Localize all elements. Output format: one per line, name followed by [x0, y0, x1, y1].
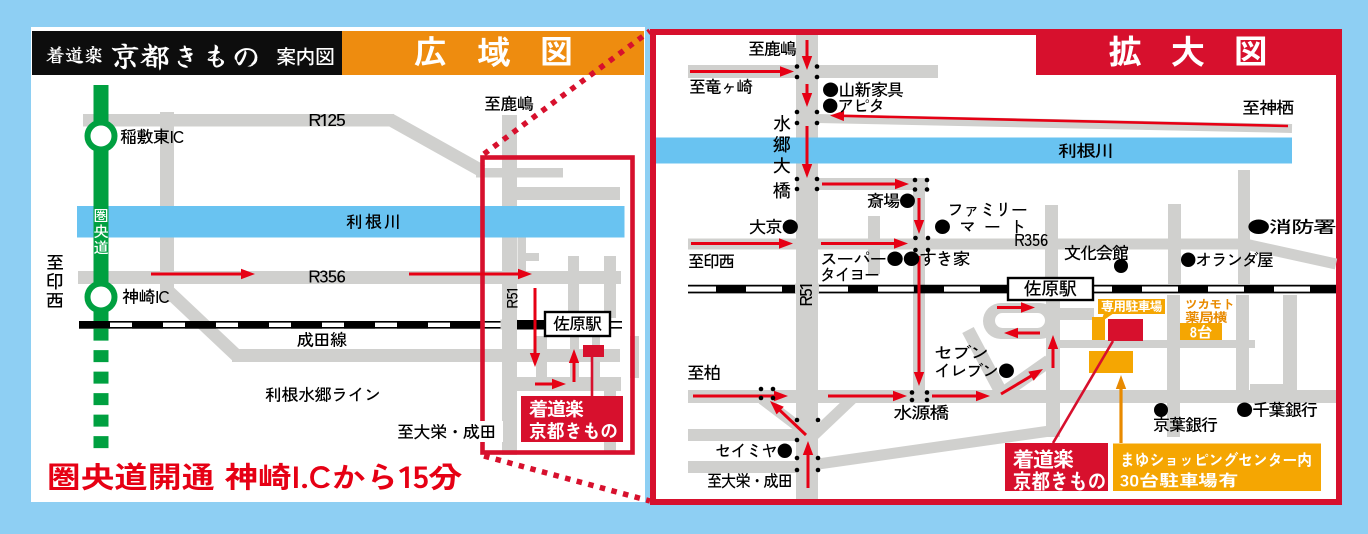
- svg-text:大: 大: [773, 152, 791, 178]
- svg-text:至鹿嶋: 至鹿嶋: [748, 35, 797, 60]
- svg-text:佐原駅: 佐原駅: [1024, 275, 1077, 301]
- svg-text:水源橋: 水源橋: [893, 399, 949, 424]
- svg-text:西: 西: [46, 287, 64, 313]
- svg-text:至竜ヶ崎: 至竜ヶ崎: [689, 73, 752, 98]
- svg-text:拡大図: 拡大図: [1108, 25, 1297, 74]
- svg-text:至鹿嶋: 至鹿嶋: [484, 90, 534, 115]
- svg-text:30台駐車場有: 30台駐車場有: [1120, 468, 1238, 492]
- svg-text:8台: 8台: [1190, 322, 1214, 343]
- svg-text:京都きもの: 京都きもの: [1013, 466, 1106, 496]
- svg-text:●アピタ: ●アピタ: [822, 92, 884, 117]
- svg-text:R51: R51: [502, 287, 523, 308]
- svg-text:利根水郷ライン: 利根水郷ライン: [265, 381, 381, 406]
- svg-text:R125: R125: [308, 106, 346, 131]
- svg-text:京都きもの: 京都きもの: [110, 34, 261, 76]
- svg-text:●千葉銀行: ●千葉銀行: [1236, 396, 1317, 421]
- svg-text:圏央道開通 神崎I.Cから15分: 圏央道開通 神崎I.Cから15分: [47, 453, 462, 497]
- svg-text:道: 道: [93, 237, 108, 258]
- svg-text:佐原駅: 佐原駅: [553, 310, 602, 335]
- svg-text:案内図: 案内図: [276, 41, 335, 70]
- svg-text:至神栖: 至神栖: [1242, 94, 1294, 119]
- svg-text:イレブン●: イレブン●: [934, 357, 1014, 382]
- svg-text:R356: R356: [1014, 226, 1048, 251]
- svg-text:R51: R51: [793, 283, 818, 306]
- svg-text:至柏: 至柏: [687, 359, 720, 384]
- svg-text:至大栄・成田: 至大栄・成田: [707, 467, 792, 492]
- svg-text:●消防署: ●消防署: [1247, 213, 1336, 238]
- svg-text:至大栄・成田: 至大栄・成田: [397, 418, 496, 443]
- svg-text:利根川: 利根川: [346, 208, 403, 233]
- svg-text:成田線: 成田線: [297, 326, 347, 351]
- svg-text:タイヨー: タイヨー: [820, 261, 879, 286]
- svg-text:斎場●: 斎場●: [867, 187, 915, 212]
- svg-text:R356: R356: [308, 263, 345, 288]
- svg-text:セイミヤ●: セイミヤ●: [715, 437, 792, 462]
- svg-text:至印西: 至印西: [688, 248, 735, 273]
- svg-text:利根川: 利根川: [1058, 137, 1113, 162]
- svg-text:専用駐車場: 専用駐車場: [1101, 296, 1163, 315]
- svg-text:●オランダ屋: ●オランダ屋: [1180, 246, 1273, 271]
- svg-text:神崎IC: 神崎IC: [122, 283, 170, 308]
- svg-text:橋: 橋: [772, 177, 791, 203]
- svg-text:広域図: 広域図: [414, 26, 603, 74]
- svg-text:京都きもの: 京都きもの: [529, 417, 618, 444]
- svg-text:着道楽: 着道楽: [46, 41, 103, 68]
- svg-text:稲敷東IC: 稲敷東IC: [120, 123, 184, 148]
- svg-text:大京●: 大京●: [749, 213, 798, 238]
